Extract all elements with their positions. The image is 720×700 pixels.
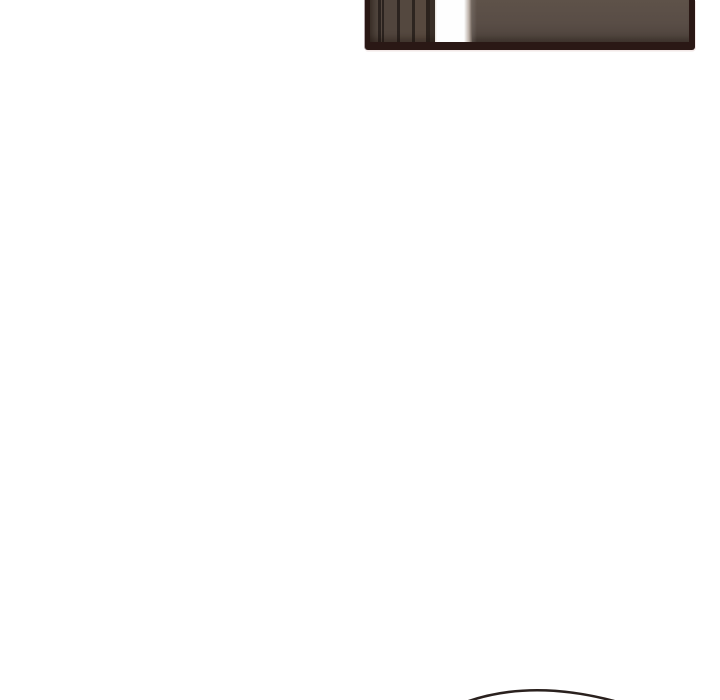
doorway-light-art <box>435 0 472 42</box>
head-outline-arc <box>0 0 720 700</box>
webtoon-reader-page <box>0 0 720 700</box>
wall-paneling-art <box>370 0 435 42</box>
wall-surface-art <box>472 0 689 42</box>
panel-artwork <box>370 0 689 42</box>
comic-panel-top-fragment <box>365 0 695 50</box>
arc-path <box>466 690 614 700</box>
